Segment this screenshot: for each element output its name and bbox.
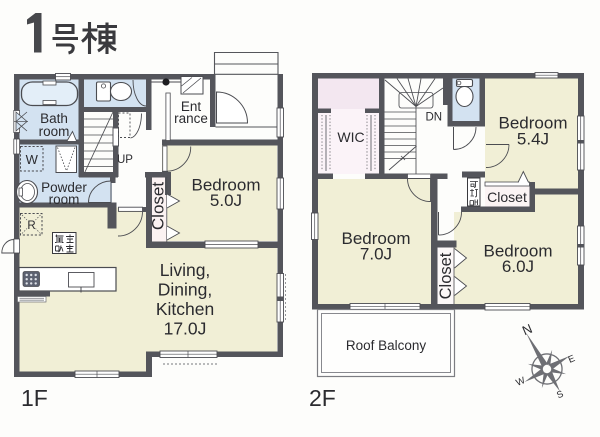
svg-text:Dining,: Dining,	[158, 280, 212, 300]
svg-text:R: R	[27, 220, 35, 232]
svg-text:Closet: Closet	[487, 189, 527, 205]
svg-text:DN: DN	[426, 112, 443, 124]
svg-text:room: room	[39, 124, 70, 139]
svg-text:Closet: Closet	[149, 182, 168, 230]
svg-text:UP: UP	[117, 154, 133, 166]
svg-text:room: room	[49, 192, 80, 207]
svg-text:2F: 2F	[309, 385, 336, 411]
svg-text:5.4J: 5.4J	[517, 130, 549, 149]
svg-text:Living,: Living,	[160, 260, 211, 280]
svg-text:17.0J: 17.0J	[164, 319, 207, 339]
svg-text:WIC: WIC	[337, 129, 364, 145]
svg-text:Kitchen: Kitchen	[156, 299, 214, 319]
svg-text:Roof Balcony: Roof Balcony	[346, 338, 427, 353]
svg-text:5.0J: 5.0J	[210, 191, 242, 210]
svg-text:rance: rance	[174, 111, 208, 126]
svg-text:6.0J: 6.0J	[502, 257, 534, 276]
svg-text:1F: 1F	[21, 385, 48, 411]
svg-text:7.0J: 7.0J	[360, 245, 392, 264]
svg-text:Closet: Closet	[437, 252, 455, 299]
svg-text:W: W	[26, 152, 39, 167]
